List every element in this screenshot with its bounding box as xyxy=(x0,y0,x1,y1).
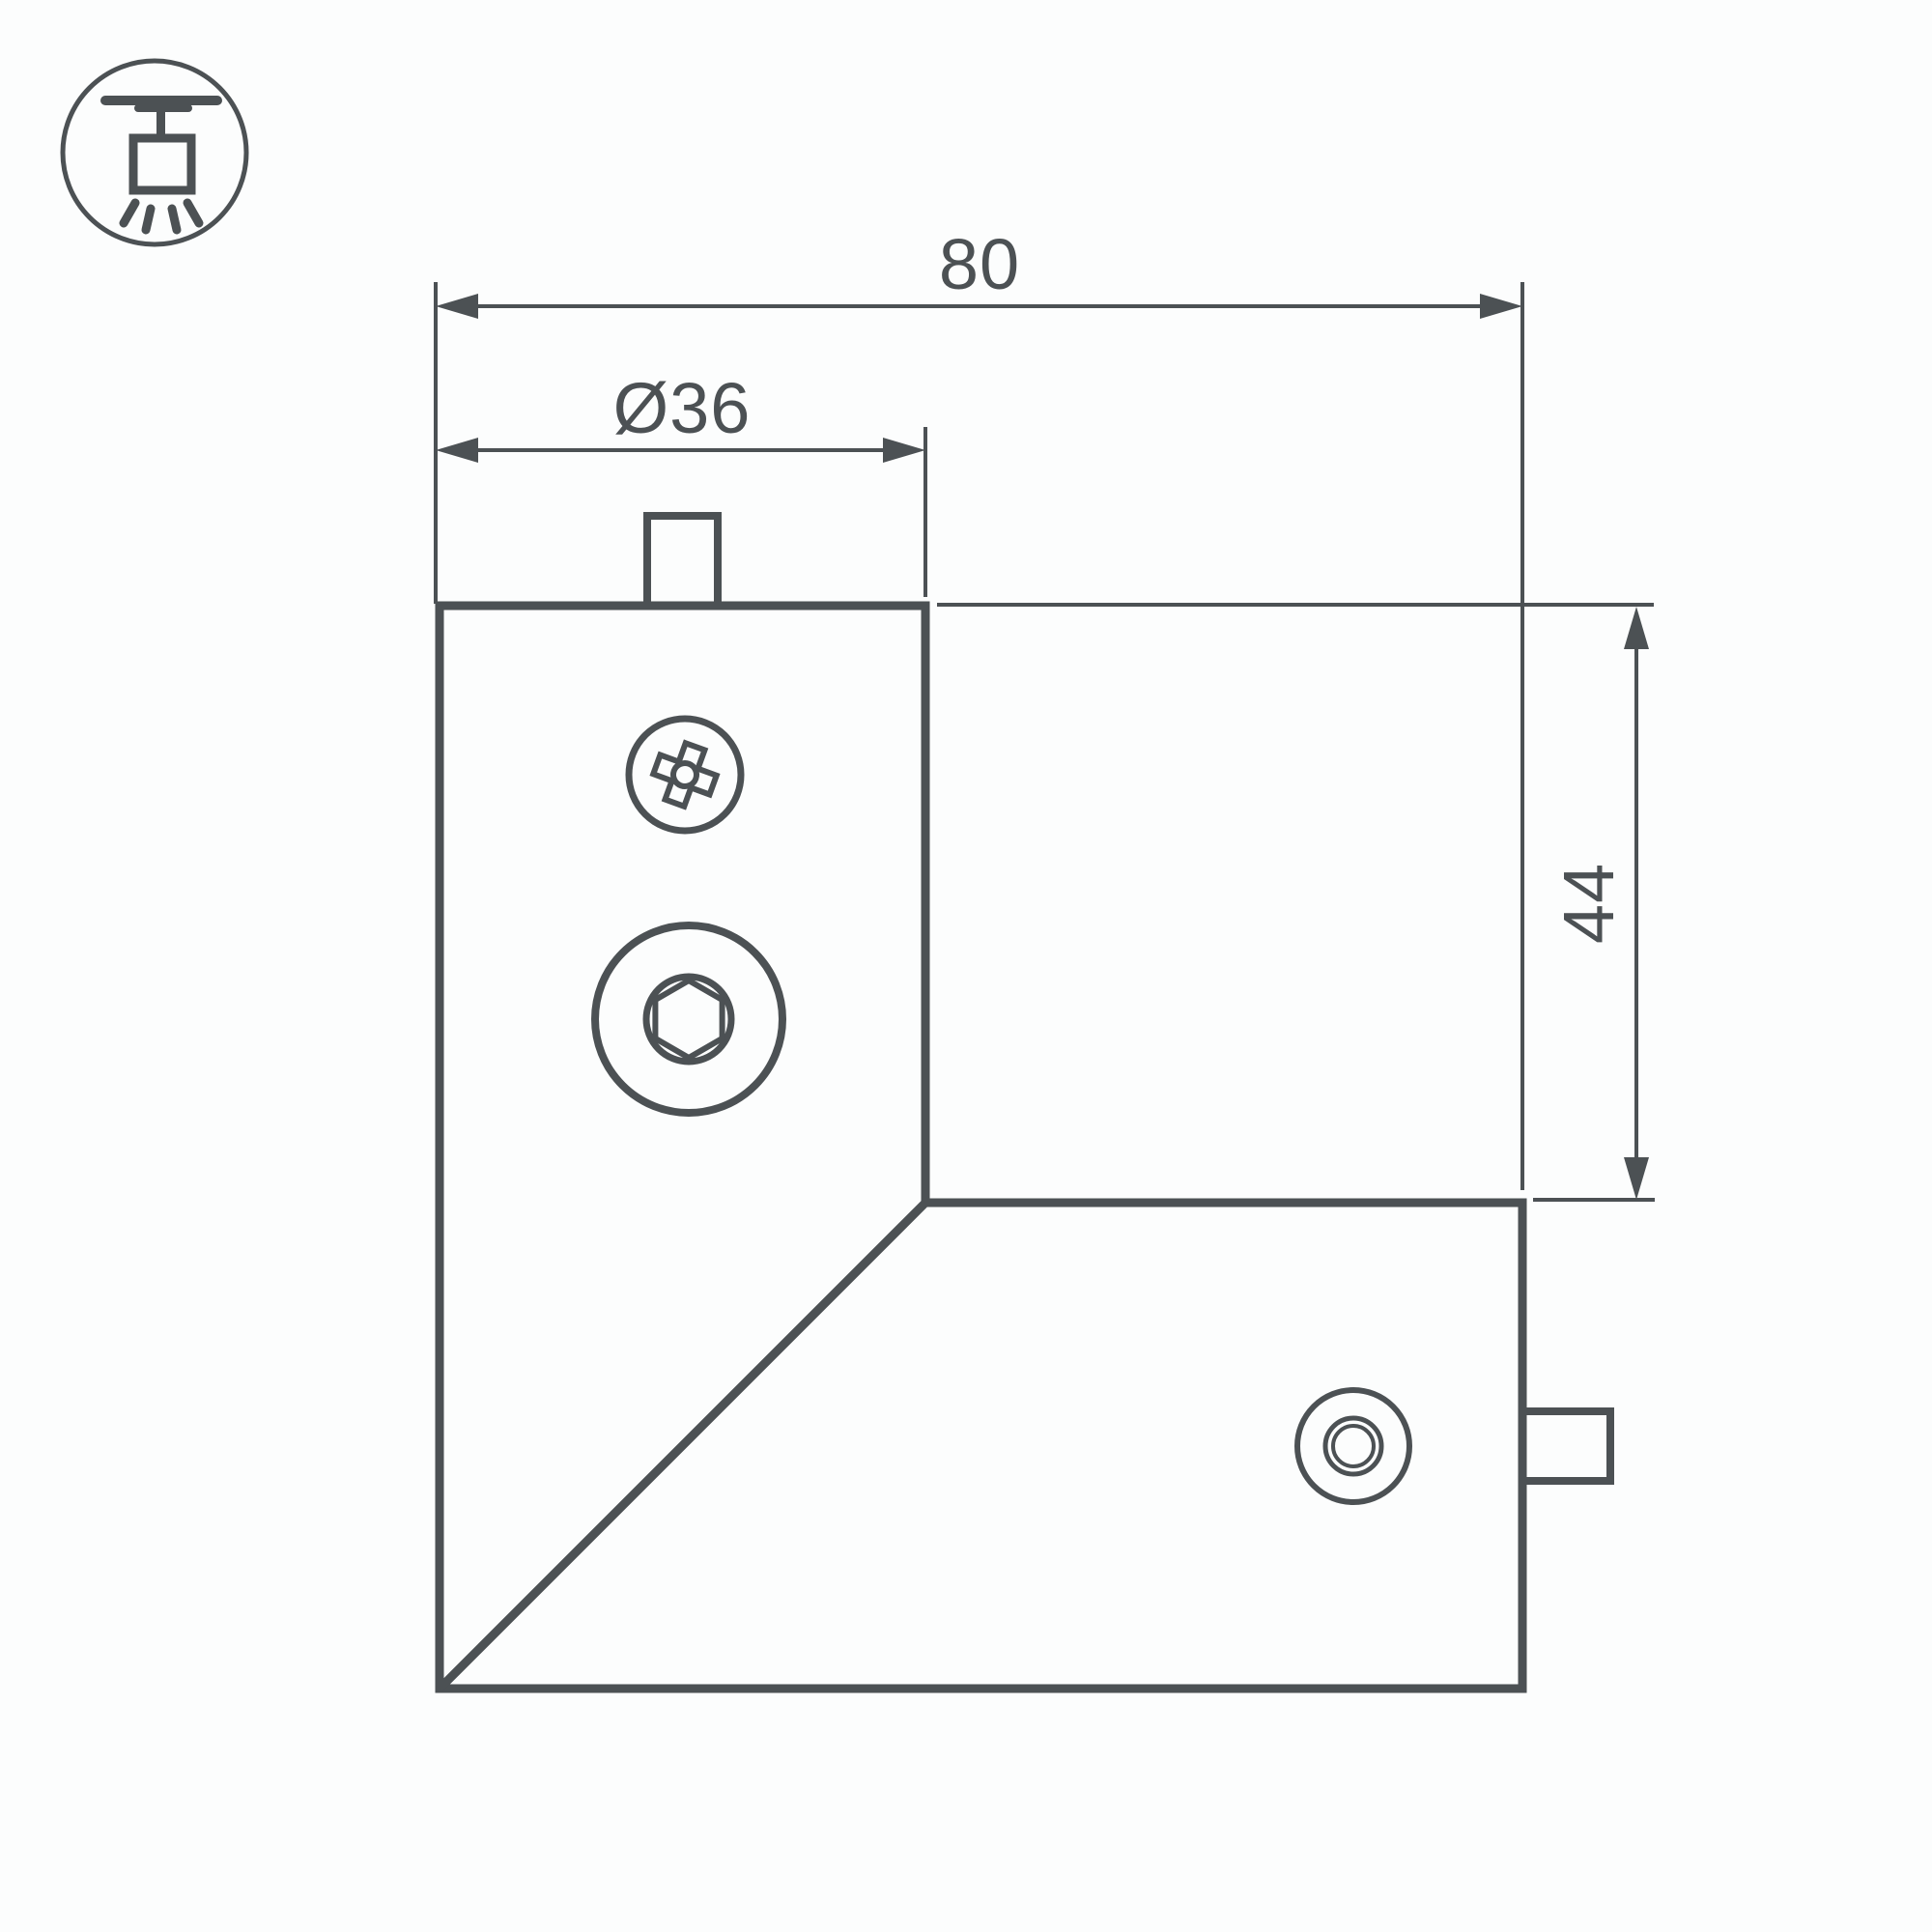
phillips-cross xyxy=(646,736,723,812)
dim-80-label: 80 xyxy=(939,224,1020,304)
dimension-44: 44 xyxy=(937,605,1655,1200)
dim-80-arrow-left xyxy=(436,294,478,319)
top-connector-tab xyxy=(647,516,718,606)
hex-screw-recess xyxy=(646,977,731,1062)
hex-screw-head xyxy=(595,925,782,1113)
right-connector-tab xyxy=(1522,1411,1610,1481)
phillips-screw-head xyxy=(629,719,741,831)
dim-36-label: Ø36 xyxy=(613,368,752,448)
fixture xyxy=(440,516,1610,1689)
technical-drawing-page: 80 Ø36 44 xyxy=(0,0,1932,1932)
ceiling-track-light-icon xyxy=(63,61,246,244)
dim-44-label: 44 xyxy=(1548,863,1629,944)
round-screw-head xyxy=(1297,1390,1409,1502)
phillips-screw xyxy=(629,719,741,831)
technical-drawing: 80 Ø36 44 xyxy=(0,0,1932,1932)
dim-36-arrow-right xyxy=(883,438,925,463)
phillips-center xyxy=(670,760,700,790)
hex-socket xyxy=(655,980,722,1058)
hex-socket-screw xyxy=(595,925,782,1113)
round-screw-core xyxy=(1333,1426,1374,1466)
fixture-miter-seam xyxy=(440,1203,925,1689)
dimension-36: Ø36 xyxy=(436,368,925,597)
dim-36-arrow-left xyxy=(436,438,478,463)
dim-44-arrow-top xyxy=(1624,607,1649,649)
dim-80-arrow-right xyxy=(1480,294,1522,319)
icon-light-rays xyxy=(124,203,199,230)
dim-44-arrow-bottom xyxy=(1624,1157,1649,1200)
icon-circle xyxy=(63,61,246,244)
icon-lamp-box xyxy=(133,138,191,190)
round-screw xyxy=(1297,1390,1409,1502)
